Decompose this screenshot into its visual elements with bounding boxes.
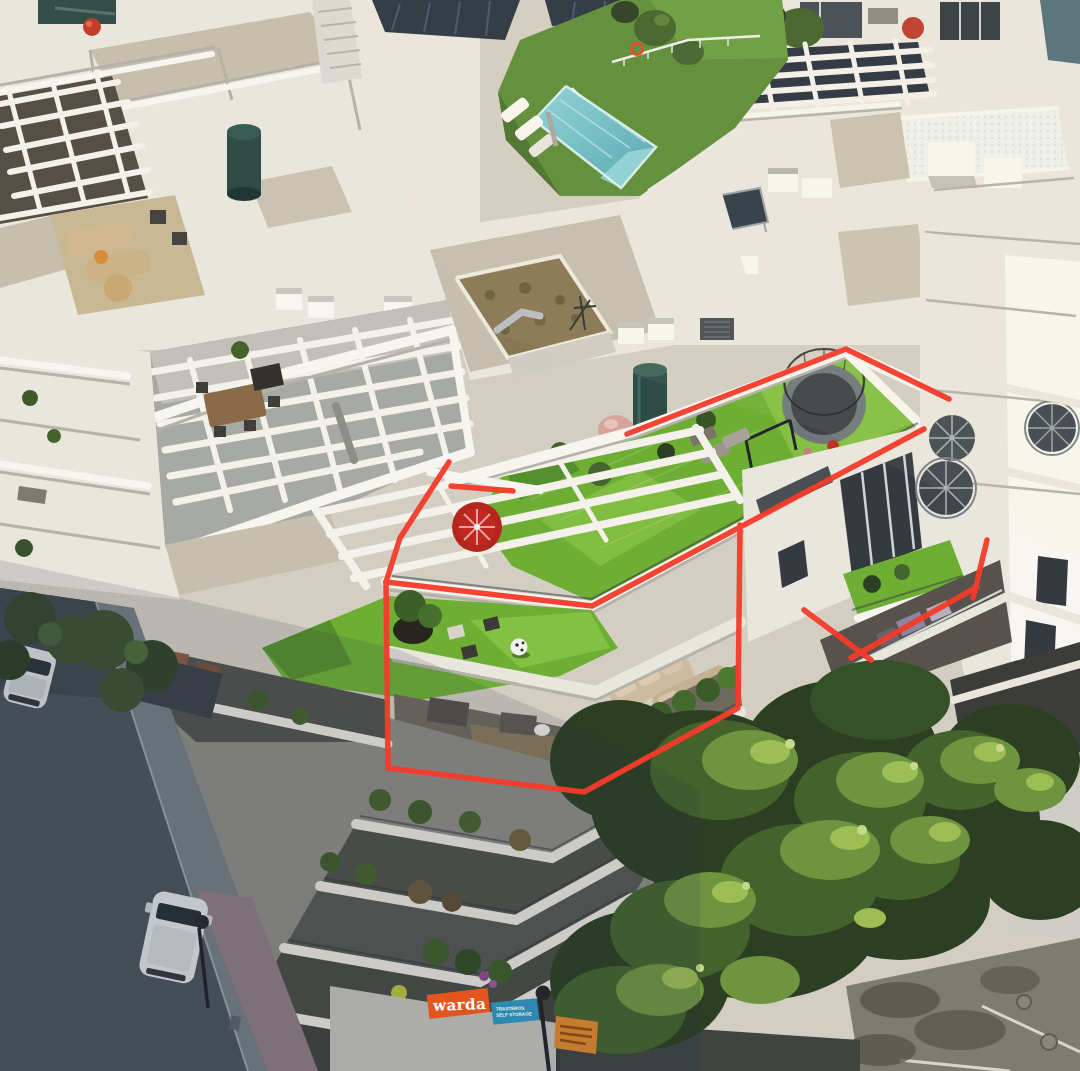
warda-sign-text: warda	[432, 995, 487, 1015]
teal-water-tank-left	[227, 124, 261, 201]
red-vent	[83, 18, 101, 36]
storage-sign-line1: TRASTEROS	[496, 1006, 525, 1012]
aerial-photo: warda TRASTEROS SELF STORAGE	[0, 0, 1080, 1071]
red-wheel-ornament	[452, 502, 502, 552]
storage-sign: TRASTEROS SELF STORAGE	[491, 998, 540, 1025]
orange-sign	[554, 1016, 598, 1054]
